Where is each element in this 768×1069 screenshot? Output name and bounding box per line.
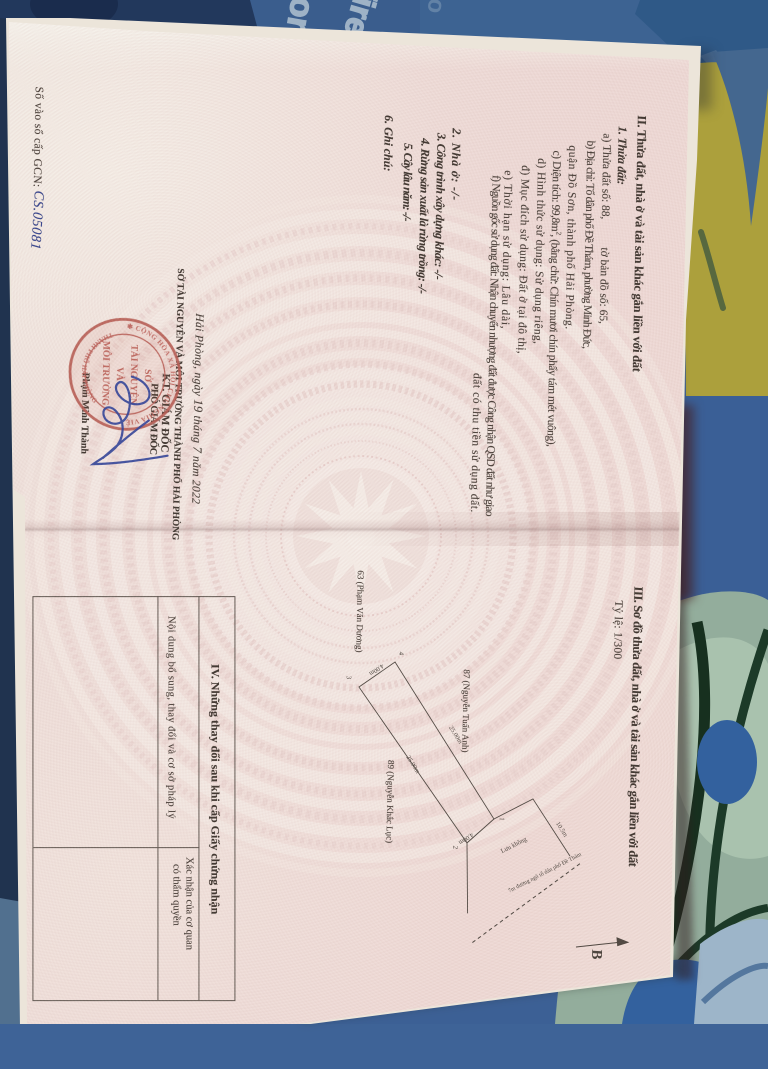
svg-text:3: 3 — [345, 676, 353, 680]
svg-text:7m đường ngõ tổ dân phố Đề Thá: 7m đường ngõ tổ dân phố Đề Thám — [507, 851, 583, 895]
svg-text:25.00m: 25.00m — [404, 754, 421, 774]
svg-text:25.00m: 25.00m — [447, 725, 464, 745]
svg-text:2: 2 — [451, 845, 459, 849]
svg-text:10.5m: 10.5m — [554, 821, 569, 839]
svg-text:1: 1 — [498, 817, 506, 821]
svg-text:4.00m: 4.00m — [368, 662, 385, 677]
svg-text:Lưu không: Lưu không — [500, 836, 529, 855]
svg-text:4: 4 — [397, 651, 405, 655]
svg-text:B: B — [588, 949, 604, 960]
